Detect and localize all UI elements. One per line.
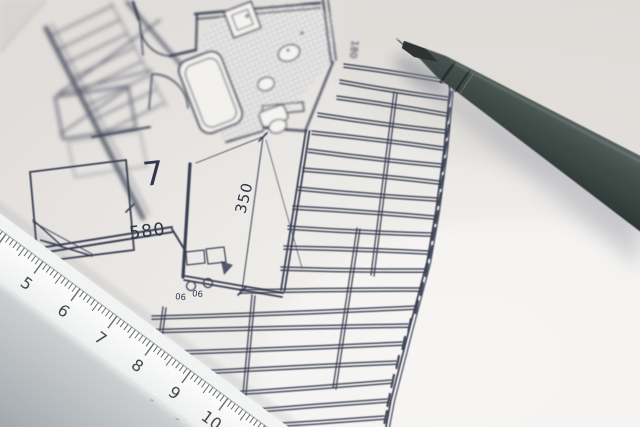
dim-90-right-label: 90 — [192, 287, 204, 298]
photo-canvas: 7 580 350 90 90 180 4 5 6 7 8 9 10 43 — [0, 0, 640, 427]
floorplan-photo-scene: 7 580 350 90 90 180 4 5 6 7 8 9 10 43 — [0, 0, 640, 427]
room-number-label: 7 — [141, 153, 166, 194]
dim-90-left-label: 90 — [175, 290, 187, 301]
dim-180-label: 180 — [347, 40, 360, 59]
